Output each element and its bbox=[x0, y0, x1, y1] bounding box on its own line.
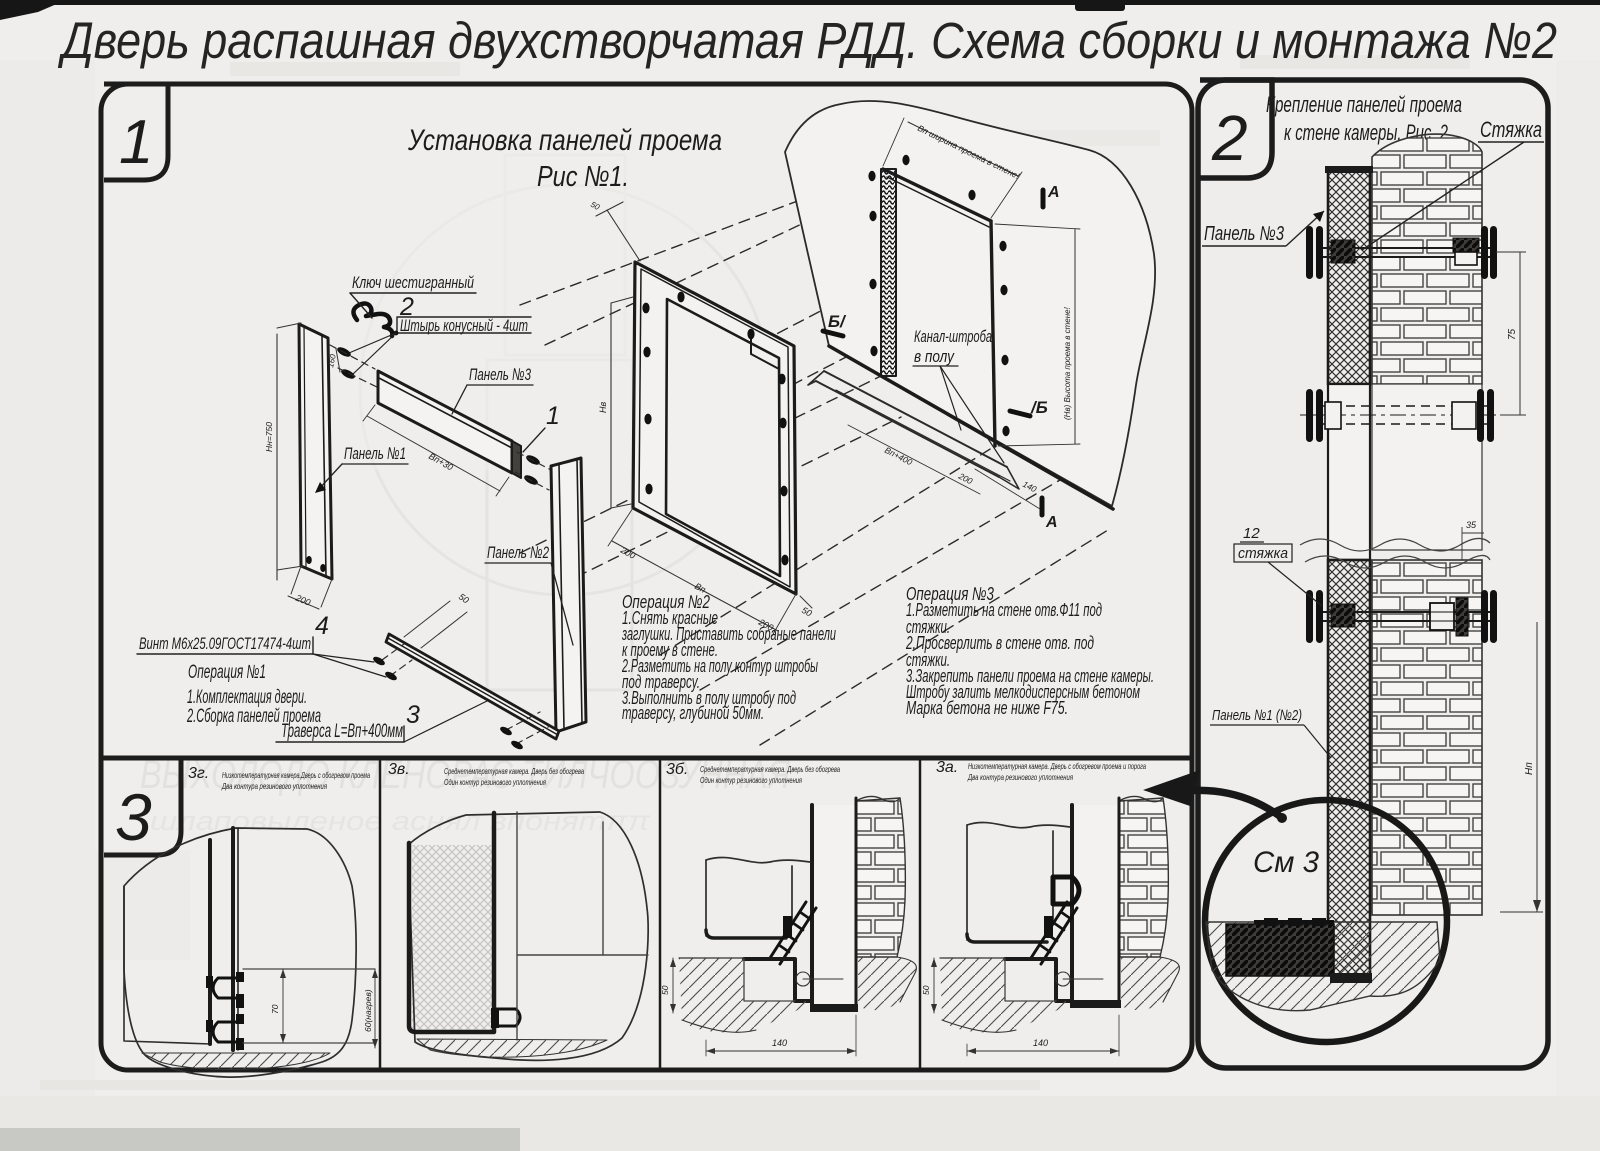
svg-text:3: 3 bbox=[115, 780, 152, 854]
svg-text:Один контур резинового уплотне: Один контур резинового уплотнения bbox=[444, 777, 546, 787]
svg-text:Ключ шестигранный: Ключ шестигранный bbox=[352, 273, 474, 292]
svg-text:стяжка: стяжка bbox=[1238, 545, 1288, 562]
svg-text:А: А bbox=[1047, 184, 1060, 201]
svg-text:Стяжка: Стяжка bbox=[1480, 117, 1542, 142]
svg-text:(Нв) Высота проема в стене!: (Нв) Высота проема в стене! bbox=[1063, 306, 1072, 420]
svg-text:шлаповыленое аснял впонятππ: шлаповыленое аснял впонятππ bbox=[150, 806, 651, 836]
svg-text:Винт М6х25.09ГОСТ17474-4шт: Винт М6х25.09ГОСТ17474-4шт bbox=[139, 634, 311, 653]
svg-text:Среднетемпературная камера. Дв: Среднетемпературная камера. Дверь без об… bbox=[444, 766, 584, 776]
svg-text:70: 70 bbox=[270, 1004, 280, 1014]
svg-text:50: 50 bbox=[921, 985, 931, 995]
svg-text:4: 4 bbox=[315, 612, 329, 640]
svg-text:2: 2 bbox=[1211, 102, 1248, 174]
svg-text:Панель №3: Панель №3 bbox=[469, 365, 531, 384]
svg-text:Нв: Нв bbox=[598, 402, 608, 413]
svg-text:Траверса L=Вп+400мм: Траверса L=Вп+400мм bbox=[281, 721, 403, 742]
svg-text:3а.: 3а. bbox=[936, 759, 958, 776]
svg-text:1.Комплектация двери.: 1.Комплектация двери. bbox=[187, 687, 307, 708]
svg-text:1: 1 bbox=[546, 402, 560, 430]
svg-text:75: 75 bbox=[1507, 328, 1518, 340]
svg-text:3в.: 3в. bbox=[388, 761, 410, 778]
svg-text:140: 140 bbox=[1033, 1038, 1048, 1048]
svg-text:Низкотемпературная камера.Двер: Низкотемпературная камера.Дверь с обогре… bbox=[222, 770, 370, 780]
svg-text:Два контура резинового уплотне: Два контура резинового уплотнения bbox=[221, 781, 327, 791]
svg-text:12: 12 bbox=[1243, 525, 1260, 542]
svg-text:Низкотемпературная камера. Две: Низкотемпературная камера. Дверь с обогр… bbox=[968, 761, 1146, 771]
svg-text:траверсу, глубиной 50мм.: траверсу, глубиной 50мм. bbox=[622, 702, 764, 723]
svg-text:А: А bbox=[1045, 514, 1058, 531]
svg-text:Б/: Б/ bbox=[828, 312, 847, 331]
svg-text:См 3: См 3 bbox=[1253, 846, 1319, 879]
svg-text:Крепление панелей проема: Крепление панелей проема bbox=[1266, 92, 1462, 117]
svg-text:Панель №3: Панель №3 bbox=[1204, 223, 1284, 245]
svg-text:Штырь конусный - 4шт: Штырь конусный - 4шт bbox=[400, 316, 528, 335]
svg-text:3б.: 3б. bbox=[666, 761, 688, 778]
svg-text:Марка бетона не ниже F75.: Марка бетона не ниже F75. bbox=[906, 697, 1068, 718]
svg-text:50: 50 bbox=[660, 985, 670, 995]
svg-text:35: 35 bbox=[1466, 520, 1477, 530]
svg-text:Панель №1 (№2): Панель №1 (№2) bbox=[1212, 707, 1302, 724]
svg-text:60(нагрев): 60(нагрев) bbox=[363, 989, 373, 1032]
svg-text:Один контур резинового уплотне: Один контур резинового уплотнения bbox=[700, 775, 802, 785]
svg-text:140: 140 bbox=[772, 1038, 787, 1048]
svg-text:3: 3 bbox=[406, 701, 420, 729]
svg-text:в полу: в полу bbox=[914, 347, 955, 366]
svg-text:Нп: Нп bbox=[1524, 762, 1535, 775]
svg-text:Панель №1: Панель №1 bbox=[344, 444, 406, 463]
svg-text:/Б: /Б bbox=[1030, 398, 1048, 417]
svg-text:Нн=750: Нн=750 bbox=[264, 422, 274, 452]
svg-text:Рис №1.: Рис №1. bbox=[537, 161, 629, 193]
svg-text:Среднетемпературная камера. Дв: Среднетемпературная камера. Дверь без об… bbox=[700, 764, 840, 774]
svg-text:Панель №2: Панель №2 bbox=[487, 543, 549, 562]
svg-text:1: 1 bbox=[119, 108, 153, 177]
svg-text:Дверь распашная двухстворчатая: Дверь распашная двухстворчатая РДД. Схем… bbox=[58, 12, 1557, 69]
svg-text:3г.: 3г. bbox=[188, 765, 209, 782]
svg-text:Установка панелей проема: Установка панелей проема bbox=[407, 124, 722, 157]
svg-text:Канал-штроба: Канал-штроба bbox=[914, 327, 992, 346]
svg-text:Операция №1: Операция №1 bbox=[188, 662, 266, 683]
svg-text:Два контура резинового уплотне: Два контура резинового уплотнения bbox=[967, 772, 1073, 782]
